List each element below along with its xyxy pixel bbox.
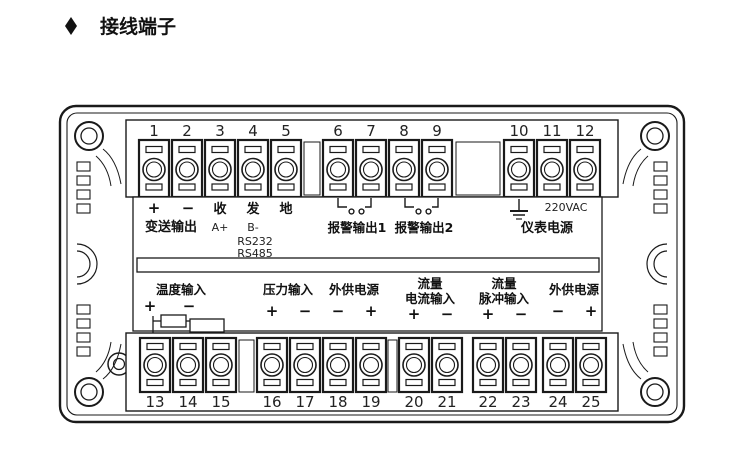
- meter-power-label: 仪表电源: [520, 220, 573, 236]
- rs485-label: RS485: [237, 247, 273, 260]
- terminal-block: [356, 338, 386, 392]
- jumper-bar: [190, 319, 224, 332]
- flow-pulse-minus: −: [515, 305, 528, 323]
- terminal-block: [140, 338, 170, 392]
- label-panel: + − 变送输出 收 发 地 A+ B- RS232 RS485 报警输出1 报…: [133, 197, 602, 338]
- tx-label: 发: [245, 201, 260, 217]
- terminal-number: 22: [478, 393, 497, 411]
- terminal-number: 4: [248, 122, 258, 140]
- ext-right-minus: −: [552, 302, 565, 320]
- page-title-text: 接线端子: [100, 15, 176, 38]
- terminal-block: [570, 140, 600, 197]
- temp-input-label: 温度输入: [156, 282, 207, 297]
- top-terminal-numbers: 1 2 3 4 5 6 7 8 9 10 11 12: [149, 122, 594, 140]
- flow-current-minus: −: [441, 305, 454, 323]
- center-slot: [137, 258, 599, 272]
- terminal-number: 17: [295, 393, 314, 411]
- ext-left-plus: +: [365, 302, 378, 320]
- ext-power-left-label: 外供电源: [328, 282, 380, 297]
- terminal-number: 5: [281, 122, 291, 140]
- terminal-block: [290, 338, 320, 392]
- strip-spacer: [388, 340, 397, 392]
- terminal-block: [323, 140, 353, 197]
- terminal-block: [173, 338, 203, 392]
- strip-spacer: [304, 142, 320, 195]
- terminal-number: 18: [328, 393, 347, 411]
- terminal-number: 19: [361, 393, 380, 411]
- terminal-block: [257, 338, 287, 392]
- strip-spacer: [239, 340, 254, 392]
- wiring-diagram-svg: 接线端子: [0, 0, 738, 462]
- page-title: 接线端子: [65, 15, 176, 38]
- rx-label: 收: [213, 201, 227, 217]
- pressure-plus: +: [266, 302, 279, 320]
- terminal-block: [238, 140, 268, 197]
- terminal-number: 12: [575, 122, 594, 140]
- rs485-a-label: A+: [212, 221, 229, 234]
- temp-minus: −: [183, 297, 196, 315]
- terminal-number: 9: [432, 122, 442, 140]
- terminal-block: [389, 140, 419, 197]
- ext-left-minus: −: [332, 302, 345, 320]
- terminal-number: 13: [145, 393, 164, 411]
- terminal-number: 8: [399, 122, 409, 140]
- flow-current-plus: +: [408, 305, 421, 323]
- terminal-block: [576, 338, 606, 392]
- terminal-block: [172, 140, 202, 197]
- ext-right-plus: +: [585, 302, 598, 320]
- terminal-number: 2: [182, 122, 192, 140]
- terminal-number: 25: [581, 393, 600, 411]
- terminal-number: 20: [404, 393, 423, 411]
- bottom-terminal-strip: 13 14 15 16 17 18 19 20 21 22 23 24 25: [126, 333, 618, 411]
- terminal-block: [422, 140, 452, 197]
- terminal-block: [537, 140, 567, 197]
- ground-label: 地: [279, 201, 292, 217]
- transmitter-plus: +: [148, 199, 161, 217]
- terminal-block: [543, 338, 573, 392]
- alarm-output-1-label: 报警输出1: [328, 220, 387, 235]
- strip-spacer: [456, 142, 500, 195]
- terminal-block: [399, 338, 429, 392]
- terminal-number: 6: [333, 122, 343, 140]
- terminal-number: 23: [511, 393, 530, 411]
- terminal-block: [139, 140, 169, 197]
- diamond-bullet-icon: [65, 17, 77, 35]
- terminal-block: [473, 338, 503, 392]
- terminal-block: [205, 140, 235, 197]
- terminal-number: 7: [366, 122, 376, 140]
- pressure-input-label: 压力输入: [263, 282, 314, 297]
- terminal-block: [206, 338, 236, 392]
- flow-current-label-1: 流量: [417, 276, 443, 291]
- flow-pulse-label-2: 脉冲输入: [478, 291, 530, 306]
- terminal-number: 14: [178, 393, 197, 411]
- top-terminal-strip: 1 2 3 4 5 6 7 8 9 10 11 12: [126, 120, 618, 197]
- terminal-number: 10: [509, 122, 528, 140]
- terminal-block: [356, 140, 386, 197]
- rs485-b-label: B-: [247, 221, 259, 234]
- ac-voltage-label: 220VAC: [545, 201, 588, 214]
- transmitter-minus: −: [182, 199, 195, 217]
- terminal-number: 21: [437, 393, 456, 411]
- flow-current-label-2: 电流输入: [405, 291, 456, 306]
- flow-pulse-label-1: 流量: [491, 276, 517, 291]
- alarm-output-2-label: 报警输出2: [395, 220, 454, 235]
- ext-power-right-label: 外供电源: [548, 282, 600, 297]
- terminal-number: 24: [548, 393, 567, 411]
- top-terminal-blocks: [139, 140, 600, 197]
- terminal-number: 16: [262, 393, 281, 411]
- wiring-terminal-diagram-page: 接线端子: [0, 0, 738, 462]
- terminal-block: [323, 338, 353, 392]
- temp-plus: +: [144, 297, 157, 315]
- terminal-number: 11: [542, 122, 561, 140]
- bottom-terminal-blocks: [140, 338, 606, 392]
- pressure-minus: −: [299, 302, 312, 320]
- terminal-number: 3: [215, 122, 225, 140]
- terminal-block: [271, 140, 301, 197]
- flow-pulse-plus: +: [482, 305, 495, 323]
- terminal-block: [432, 338, 462, 392]
- terminal-block: [504, 140, 534, 197]
- terminal-number: 1: [149, 122, 159, 140]
- transmitter-output-label: 变送输出: [145, 219, 197, 235]
- terminal-block: [506, 338, 536, 392]
- terminal-number: 15: [211, 393, 230, 411]
